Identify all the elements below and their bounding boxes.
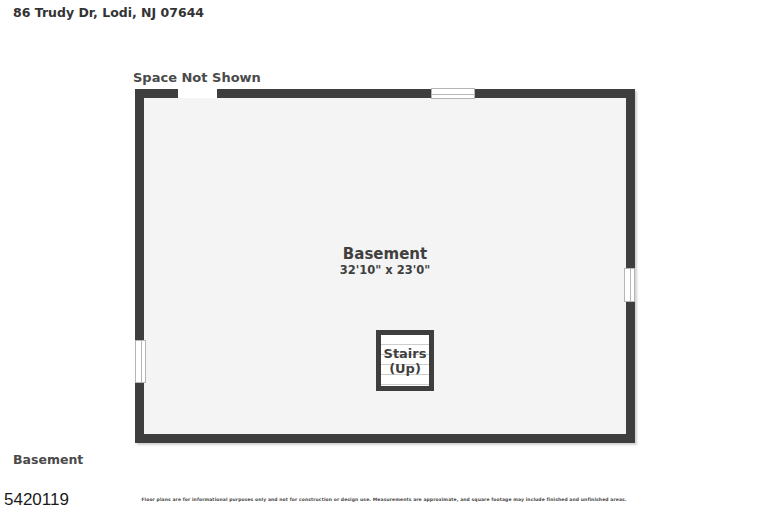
disclaimer-text: Floor plans are for informational purpos… [0, 497, 768, 502]
floorplan-basement: Basement 32'10" x 23'0" Stairs (Up) [135, 89, 635, 443]
window-symbol-top [431, 88, 475, 99]
stairs-label-line2: (Up) [384, 361, 427, 376]
wall-opening-top [178, 89, 217, 98]
room-dimensions: 32'10" x 23'0" [135, 263, 635, 277]
stairs-label-line1: Stairs [384, 346, 427, 361]
window-symbol-left [135, 340, 146, 383]
property-address: 86 Trudy Dr, Lodi, NJ 07644 [13, 5, 204, 20]
stairs-symbol: Stairs (Up) [376, 330, 434, 391]
stairs-label: Stairs (Up) [384, 346, 427, 376]
wall-bottom [135, 434, 635, 443]
floor-label: Basement [13, 452, 83, 467]
room-name: Basement [135, 245, 635, 263]
room-label-block: Basement 32'10" x 23'0" [135, 245, 635, 277]
space-not-shown-label: Space Not Shown [133, 70, 261, 85]
